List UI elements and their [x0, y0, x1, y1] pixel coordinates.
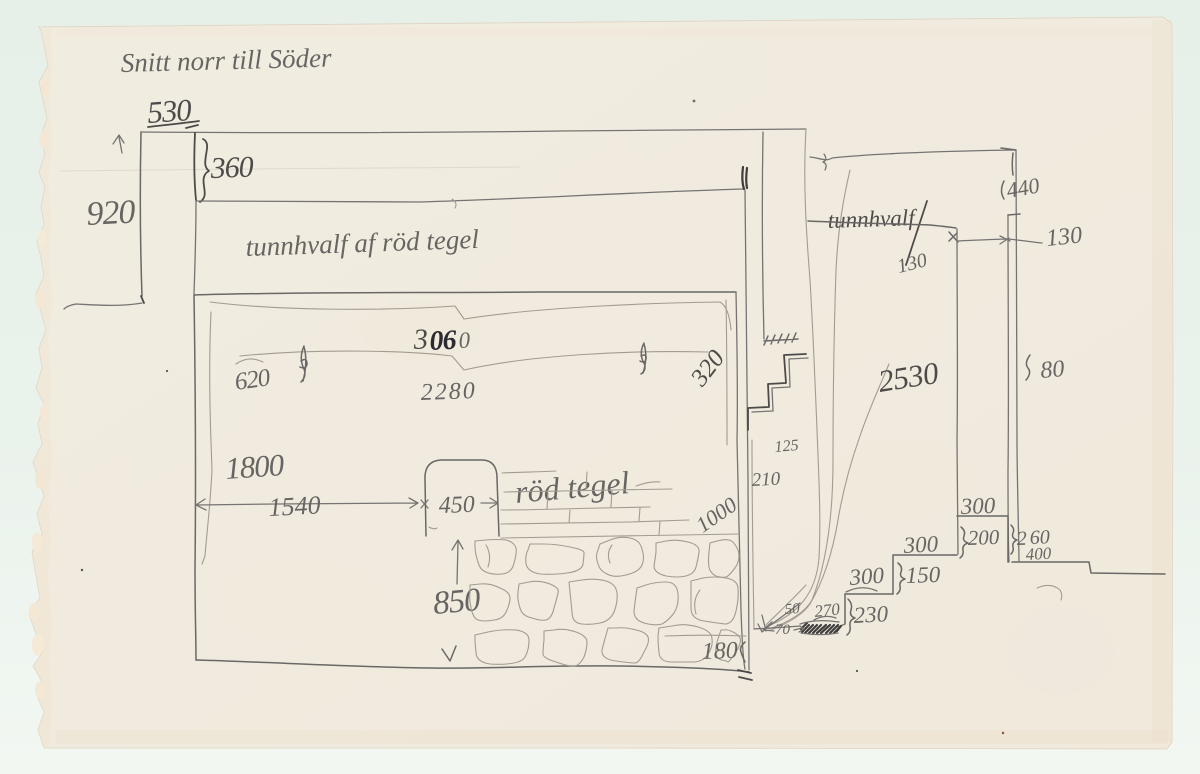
- svg-text:200: 200: [967, 525, 1000, 550]
- svg-text:80: 80: [1039, 356, 1065, 384]
- svg-text:0: 0: [458, 327, 471, 353]
- svg-text:125: 125: [774, 437, 799, 456]
- svg-text:70: 70: [775, 622, 791, 638]
- svg-text:400: 400: [1025, 544, 1052, 564]
- svg-text:130: 130: [1045, 222, 1084, 252]
- svg-text:620: 620: [233, 364, 272, 396]
- svg-text:150: 150: [905, 562, 941, 588]
- svg-text:920: 920: [85, 193, 136, 233]
- svg-text:1540: 1540: [268, 490, 321, 522]
- svg-text:Snitt norr till Söder: Snitt norr till Söder: [120, 42, 332, 78]
- svg-text:300: 300: [902, 531, 939, 558]
- svg-text:300: 300: [959, 493, 996, 519]
- svg-text:360: 360: [209, 151, 254, 186]
- svg-text:tunnhvalf: tunnhvalf: [827, 205, 918, 233]
- svg-text:180: 180: [701, 638, 738, 665]
- svg-text:3: 3: [412, 323, 429, 356]
- svg-text:1800: 1800: [224, 447, 286, 486]
- svg-text:450: 450: [438, 492, 475, 519]
- svg-text:300: 300: [848, 563, 886, 590]
- svg-text:2280: 2280: [420, 378, 477, 406]
- svg-text:230: 230: [853, 601, 889, 628]
- svg-text:06: 06: [429, 325, 458, 357]
- svg-text:850: 850: [432, 582, 483, 622]
- svg-text:210: 210: [751, 469, 781, 491]
- svg-text:50: 50: [784, 601, 801, 618]
